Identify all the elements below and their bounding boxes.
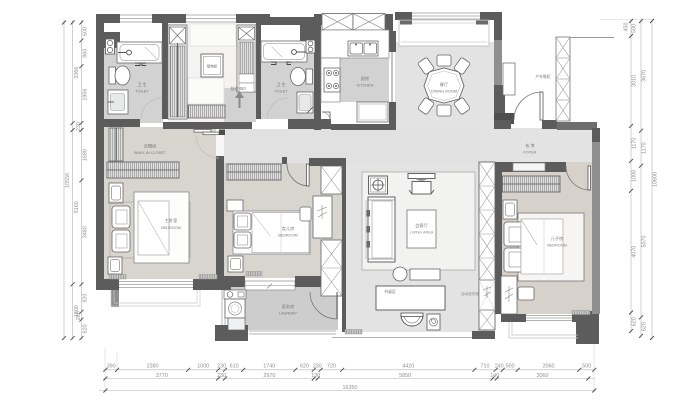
svg-text:BEDROOM: BEDROOM <box>547 244 567 248</box>
svg-text:主卧室: 主卧室 <box>165 217 178 224</box>
svg-text:3010: 3010 <box>632 75 638 87</box>
svg-text:活动挂衣架: 活动挂衣架 <box>461 291 479 296</box>
svg-text:5850: 5850 <box>399 373 411 379</box>
svg-text:TOILET: TOILET <box>135 90 149 94</box>
svg-text:2060: 2060 <box>543 364 555 370</box>
svg-text:140: 140 <box>490 373 499 379</box>
svg-text:DINING ROOM: DINING ROOM <box>431 90 457 94</box>
svg-text:16350: 16350 <box>343 385 358 391</box>
svg-text:390: 390 <box>107 364 116 370</box>
svg-text:2970: 2970 <box>263 373 275 379</box>
svg-text:BEDROOM: BEDROOM <box>161 226 181 230</box>
svg-text:920: 920 <box>83 294 89 303</box>
svg-text:240: 240 <box>495 364 504 370</box>
svg-text:610: 610 <box>230 364 239 370</box>
svg-text:3770: 3770 <box>156 373 168 379</box>
svg-text:620: 620 <box>300 364 309 370</box>
svg-text:710: 710 <box>481 364 490 370</box>
svg-text:会客厅: 会客厅 <box>415 222 428 229</box>
svg-text:3670: 3670 <box>642 70 648 82</box>
svg-text:3366: 3366 <box>74 67 80 79</box>
svg-text:620: 620 <box>642 322 648 331</box>
svg-text:厨房: 厨房 <box>361 75 369 82</box>
svg-text:卫 生: 卫 生 <box>137 81 147 87</box>
svg-text:4070: 4070 <box>632 246 638 258</box>
svg-text:2380: 2380 <box>147 364 159 370</box>
svg-text:BEDROOM: BEDROOM <box>278 234 298 238</box>
svg-text:1740: 1740 <box>263 364 275 370</box>
svg-text:1170: 1170 <box>642 142 648 154</box>
svg-text:5160: 5160 <box>74 201 80 213</box>
svg-text:620: 620 <box>632 317 638 326</box>
svg-text:230: 230 <box>217 373 226 379</box>
svg-text:卫 生: 卫 生 <box>276 81 286 87</box>
svg-text:挂衣450: 挂衣450 <box>230 85 246 92</box>
svg-text:户外鞋柜: 户外鞋柜 <box>535 74 550 79</box>
svg-text:720: 720 <box>327 364 336 370</box>
svg-text:玄 关: 玄 关 <box>525 142 535 149</box>
svg-text:230: 230 <box>313 364 322 370</box>
svg-text:储物柜: 储物柜 <box>207 64 218 69</box>
svg-text:书桌区: 书桌区 <box>384 288 396 294</box>
svg-text:1680: 1680 <box>83 149 89 161</box>
svg-text:TOILET: TOILET <box>274 90 288 94</box>
svg-text:10556: 10556 <box>65 173 71 188</box>
svg-text:1906: 1906 <box>83 89 89 101</box>
svg-text:130: 130 <box>311 373 320 379</box>
svg-text:儿子房: 儿子房 <box>551 235 564 242</box>
svg-text:KITCHEN: KITCHEN <box>357 84 374 88</box>
svg-text:500: 500 <box>582 364 591 370</box>
svg-text:860: 860 <box>83 49 89 58</box>
svg-text:450: 450 <box>624 23 630 32</box>
svg-text:1000: 1000 <box>197 364 209 370</box>
svg-text:FOYER: FOYER <box>523 151 536 155</box>
svg-text:230: 230 <box>217 364 226 370</box>
svg-text:餐厅: 餐厅 <box>440 81 448 88</box>
svg-text:LIVING AREA: LIVING AREA <box>410 231 434 235</box>
svg-text:500: 500 <box>506 364 515 370</box>
svg-text:1170: 1170 <box>632 138 638 150</box>
svg-text:LAUNDRY: LAUNDRY <box>279 312 298 316</box>
svg-text:女儿房: 女儿房 <box>282 225 295 232</box>
svg-text:3060: 3060 <box>537 373 549 379</box>
svg-text:10600: 10600 <box>653 172 659 187</box>
svg-text:4420: 4420 <box>402 364 414 370</box>
svg-text:600: 600 <box>83 27 89 36</box>
svg-text:家务房: 家务房 <box>282 303 295 310</box>
svg-text:620: 620 <box>83 324 89 333</box>
svg-text:5070: 5070 <box>642 236 648 248</box>
svg-text:1000: 1000 <box>632 170 638 182</box>
svg-text:500: 500 <box>632 24 638 33</box>
svg-text:衣帽间: 衣帽间 <box>144 143 157 150</box>
svg-text:1800: 1800 <box>74 305 80 317</box>
svg-text:230: 230 <box>76 122 82 131</box>
svg-text:WALK-IN CLOSET: WALK-IN CLOSET <box>134 151 167 155</box>
svg-text:3480: 3480 <box>83 226 89 238</box>
